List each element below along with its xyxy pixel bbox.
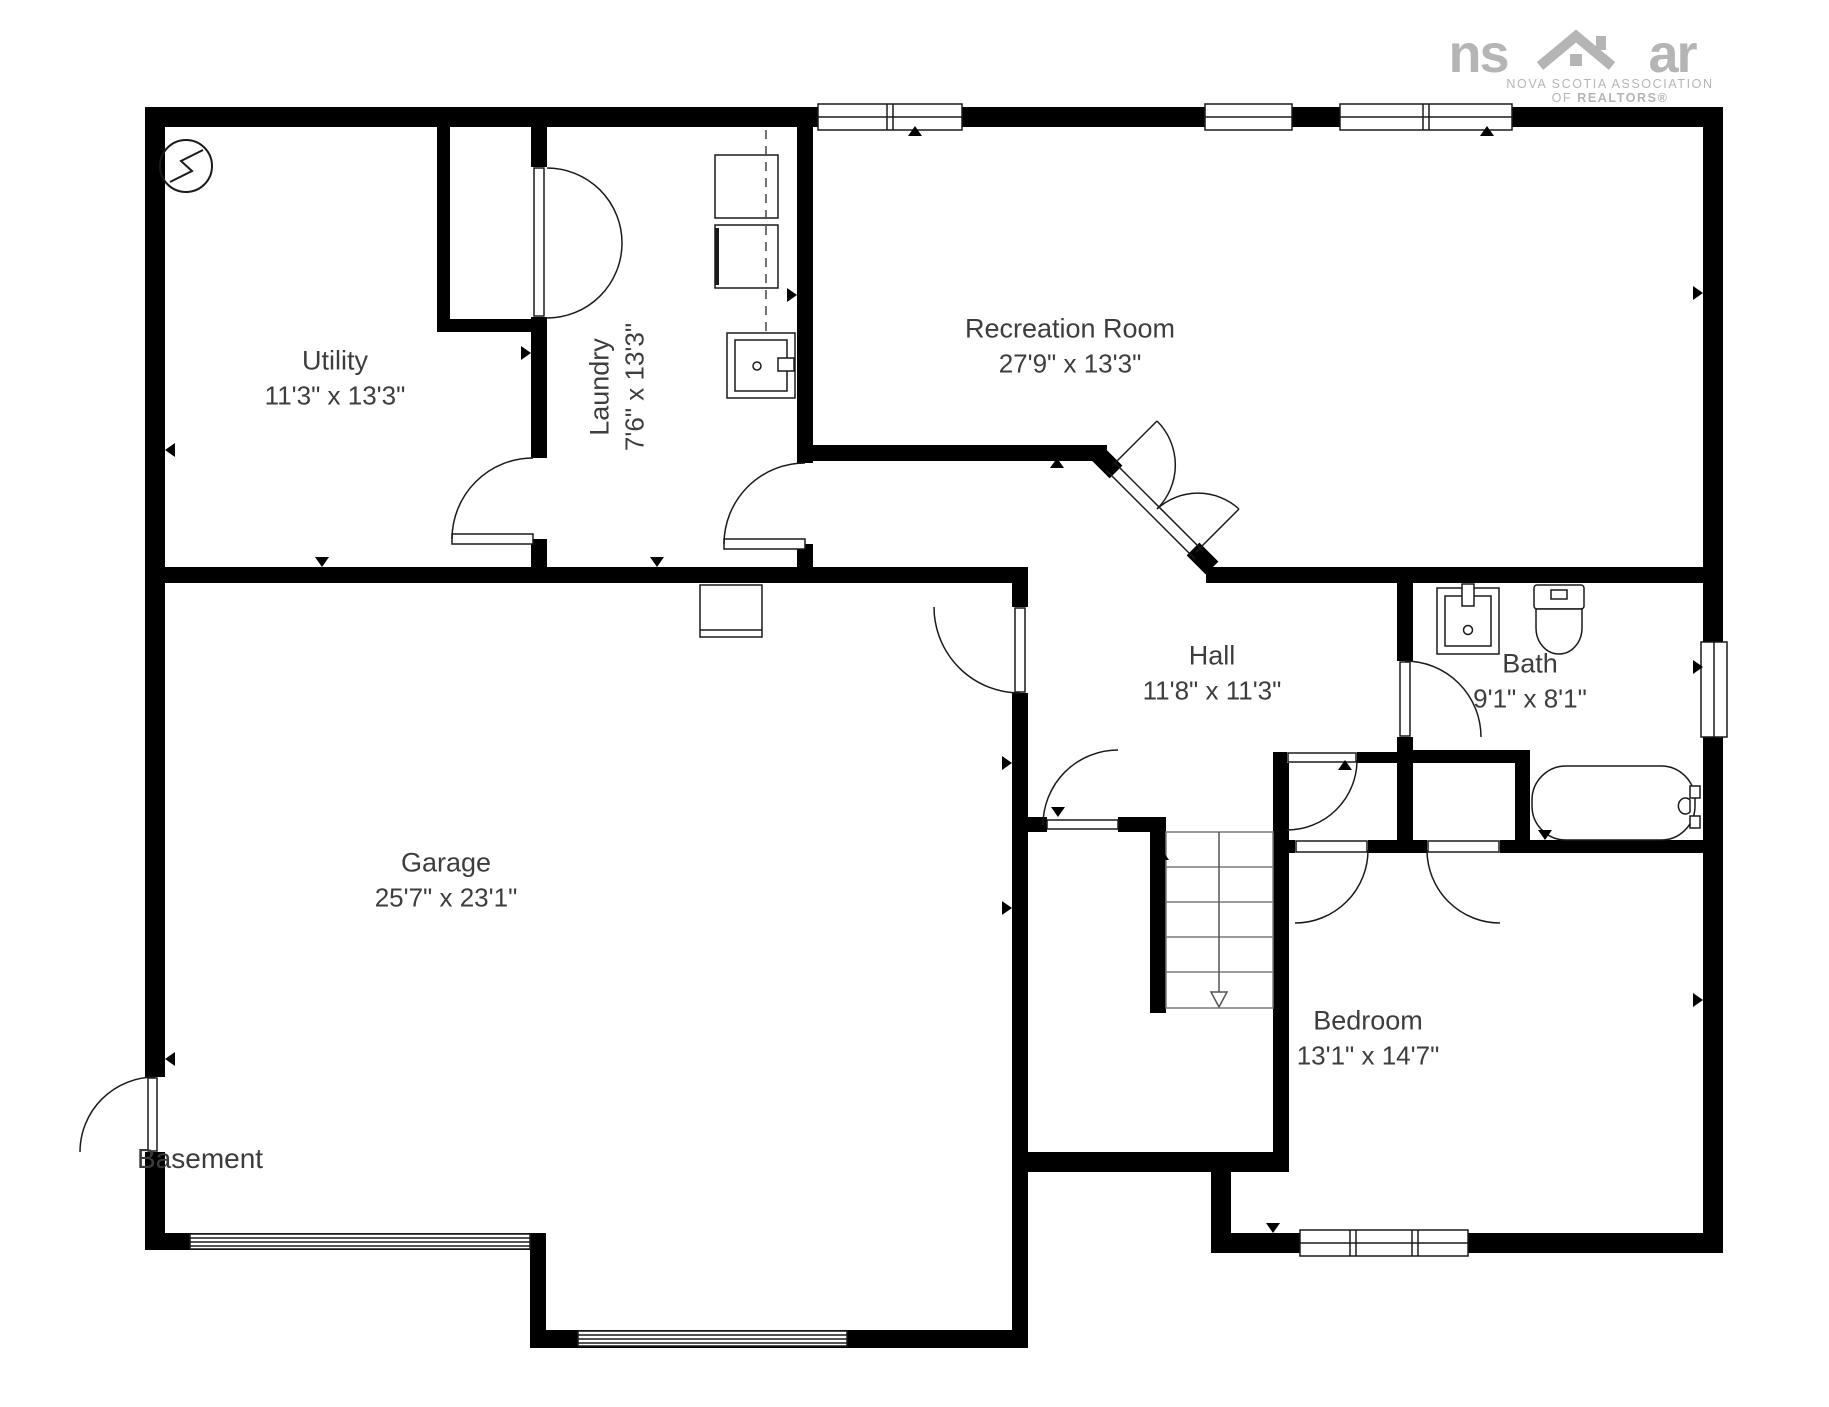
garage-door [190, 1234, 530, 1249]
floorplan-page: Utility 11'3" x 13'3" Laundry 7'6" x 13'… [0, 0, 1829, 1407]
window [1205, 104, 1292, 130]
garage-hall-door [934, 607, 1025, 693]
window [818, 104, 962, 130]
window-bedroom [1300, 1230, 1468, 1256]
assoc-line1: NOVA SCOTIA ASSOCIATION [1506, 77, 1713, 91]
double-door-rec-room [1113, 421, 1239, 552]
stairs [1166, 832, 1273, 1008]
room-label-bath: Bath 9'1" x 8'1" [1473, 649, 1587, 712]
walls [145, 107, 1723, 1348]
bifold-doors [534, 168, 622, 318]
room-label-hall: Hall 11'8" x 11'3" [1143, 641, 1282, 704]
house-window [1570, 54, 1582, 66]
electrical-panel-icon [160, 140, 212, 192]
room-label-laundry: Laundry 7'6" x 13'3" [585, 323, 648, 451]
nsar-logo: ns ar NOVA SCOTIA ASSOCIATION OF REALTOR… [1420, 22, 1810, 102]
window-bath [1701, 642, 1727, 737]
bathtub-icon [1532, 766, 1700, 840]
logo-ns-text: ns [1448, 24, 1507, 84]
house-chimney [1596, 36, 1606, 50]
diagonal-wall [1097, 453, 1212, 568]
utility-door [452, 458, 533, 544]
toilet-icon [1534, 585, 1584, 654]
bath-sink-icon [1437, 584, 1499, 654]
bedroom-door [1295, 841, 1368, 923]
washer-icon [715, 155, 778, 218]
room-label-bedroom: Bedroom 13'1" x 14'7" [1297, 1006, 1440, 1069]
garage-door [578, 1331, 847, 1346]
dryer-icon [715, 225, 778, 288]
laundry-sink-icon [727, 333, 795, 398]
window [1340, 104, 1512, 130]
floor-label: Basement [137, 1143, 263, 1175]
step [700, 585, 762, 637]
assoc-line2: OF REALTORS® [1552, 91, 1669, 102]
laundry-door [724, 463, 805, 549]
closet-door [1427, 841, 1500, 923]
stairs-down-arrow [1211, 832, 1227, 1007]
room-label-garage: Garage 25'7" x 23'1" [375, 848, 518, 911]
room-label-utility: Utility 11'3" x 13'3" [265, 346, 406, 409]
room-label-recreation: Recreation Room 27'9" x 13'3" [965, 314, 1175, 377]
door-openings [145, 167, 1500, 1152]
nsar-logo-graphic: ns ar NOVA SCOTIA ASSOCIATION OF REALTOR… [1420, 22, 1810, 102]
logo-ar-text: ar [1648, 24, 1697, 84]
